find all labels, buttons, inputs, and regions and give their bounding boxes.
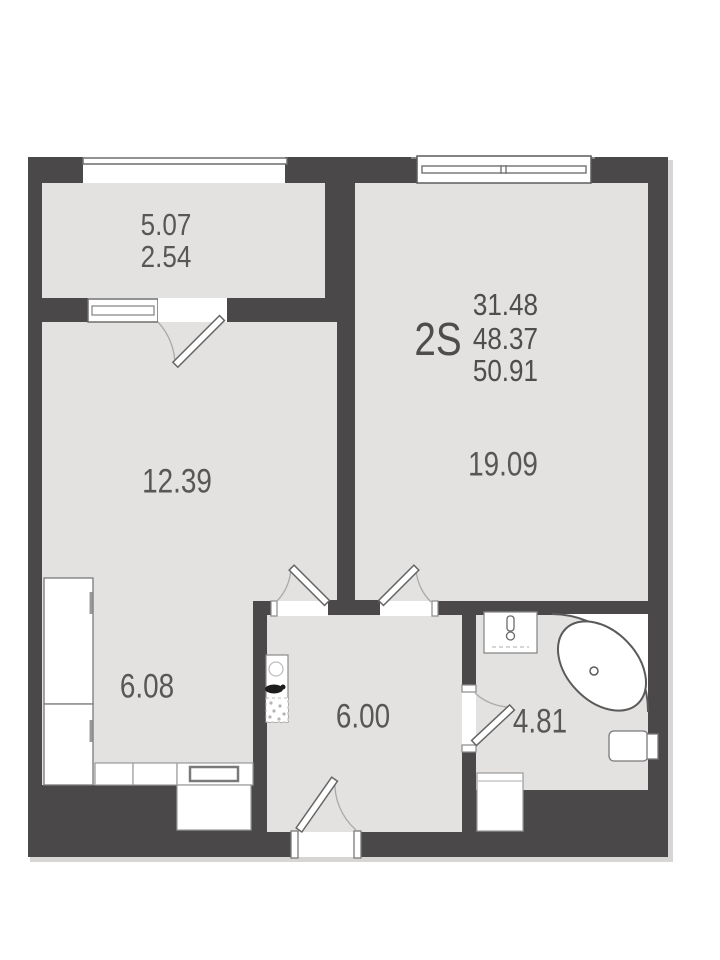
unit-area-2: 48.37 [429,322,538,356]
door-leaf [296,777,337,832]
kitchen-appliance [177,785,251,830]
door-leaf [173,316,225,368]
door-swing-arc [475,693,512,707]
door-leaf [472,705,515,746]
door-jamb [271,601,277,616]
unit-area-3: 50.91 [429,354,538,388]
door-jamb [291,831,298,858]
washing-machine [477,773,523,831]
door-jamb [462,745,476,752]
living-area-label: 19.09 [468,446,538,485]
balcony-door [158,298,227,367]
bathroom-sink [484,612,537,653]
door-leaf [379,565,419,605]
door-swing-arc [416,568,431,602]
floor-plan: 5.07 2.54 2S 31.48 48.37 50.91 19.09 12.… [0,0,720,960]
faucet-icon [265,685,283,694]
room-door [271,565,329,616]
bath-area-label: 4.81 [513,703,567,742]
door-swing-arc [277,567,291,601]
room-area-label: 12.39 [142,463,212,502]
kitchen-counter [95,763,253,830]
faucet-icon [507,616,514,631]
living-room-window [411,156,595,183]
toilet-tank [647,734,658,759]
balcony-area-full: 5.07 [141,207,192,243]
kitchen-area-label: 6.08 [120,668,174,707]
balcony-area-reduced: 2.54 [141,239,192,275]
drain [590,667,598,675]
wardrobe [44,578,93,785]
bathroom-door [462,685,514,752]
door-jamb [354,831,361,858]
balcony-window [88,299,158,322]
door-leaf [289,565,329,605]
kitchenette [265,655,288,722]
door-jamb [462,685,476,692]
entrance-door [291,777,361,858]
door-swing-arc [335,779,356,830]
unit-area-1: 31.48 [429,288,538,322]
balcony-glazing-window [83,158,287,164]
living-door [379,565,438,616]
door-swing-arc [158,322,175,365]
toilet [609,731,658,761]
hall-area-label: 6.00 [336,698,390,737]
fixtures-layer [0,0,720,960]
door-jamb [432,601,438,616]
